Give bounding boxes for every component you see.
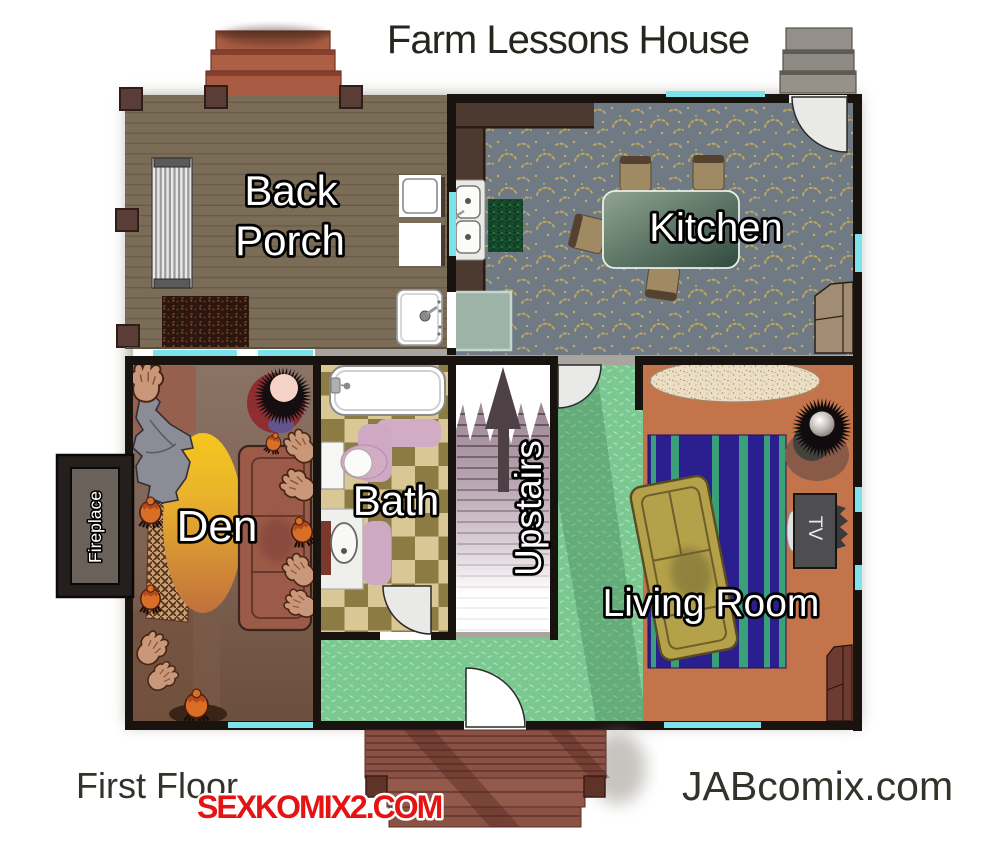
svg-text:SEXKOMIX2.COM: SEXKOMIX2.COM <box>197 789 442 825</box>
svg-text:Upstairs: Upstairs <box>508 440 549 576</box>
svg-text:Porch: Porch <box>235 217 345 264</box>
svg-text:TV: TV <box>804 516 825 541</box>
svg-text:JABcomix.com: JABcomix.com <box>682 763 953 809</box>
svg-text:Farm Lessons House: Farm Lessons House <box>387 18 749 62</box>
svg-text:Bath: Bath <box>353 477 439 524</box>
svg-text:Living Room: Living Room <box>603 582 820 625</box>
svg-text:Fireplace: Fireplace <box>85 491 105 563</box>
svg-text:Den: Den <box>177 502 258 551</box>
svg-text:Back: Back <box>244 167 338 214</box>
svg-text:Kitchen: Kitchen <box>649 206 782 250</box>
